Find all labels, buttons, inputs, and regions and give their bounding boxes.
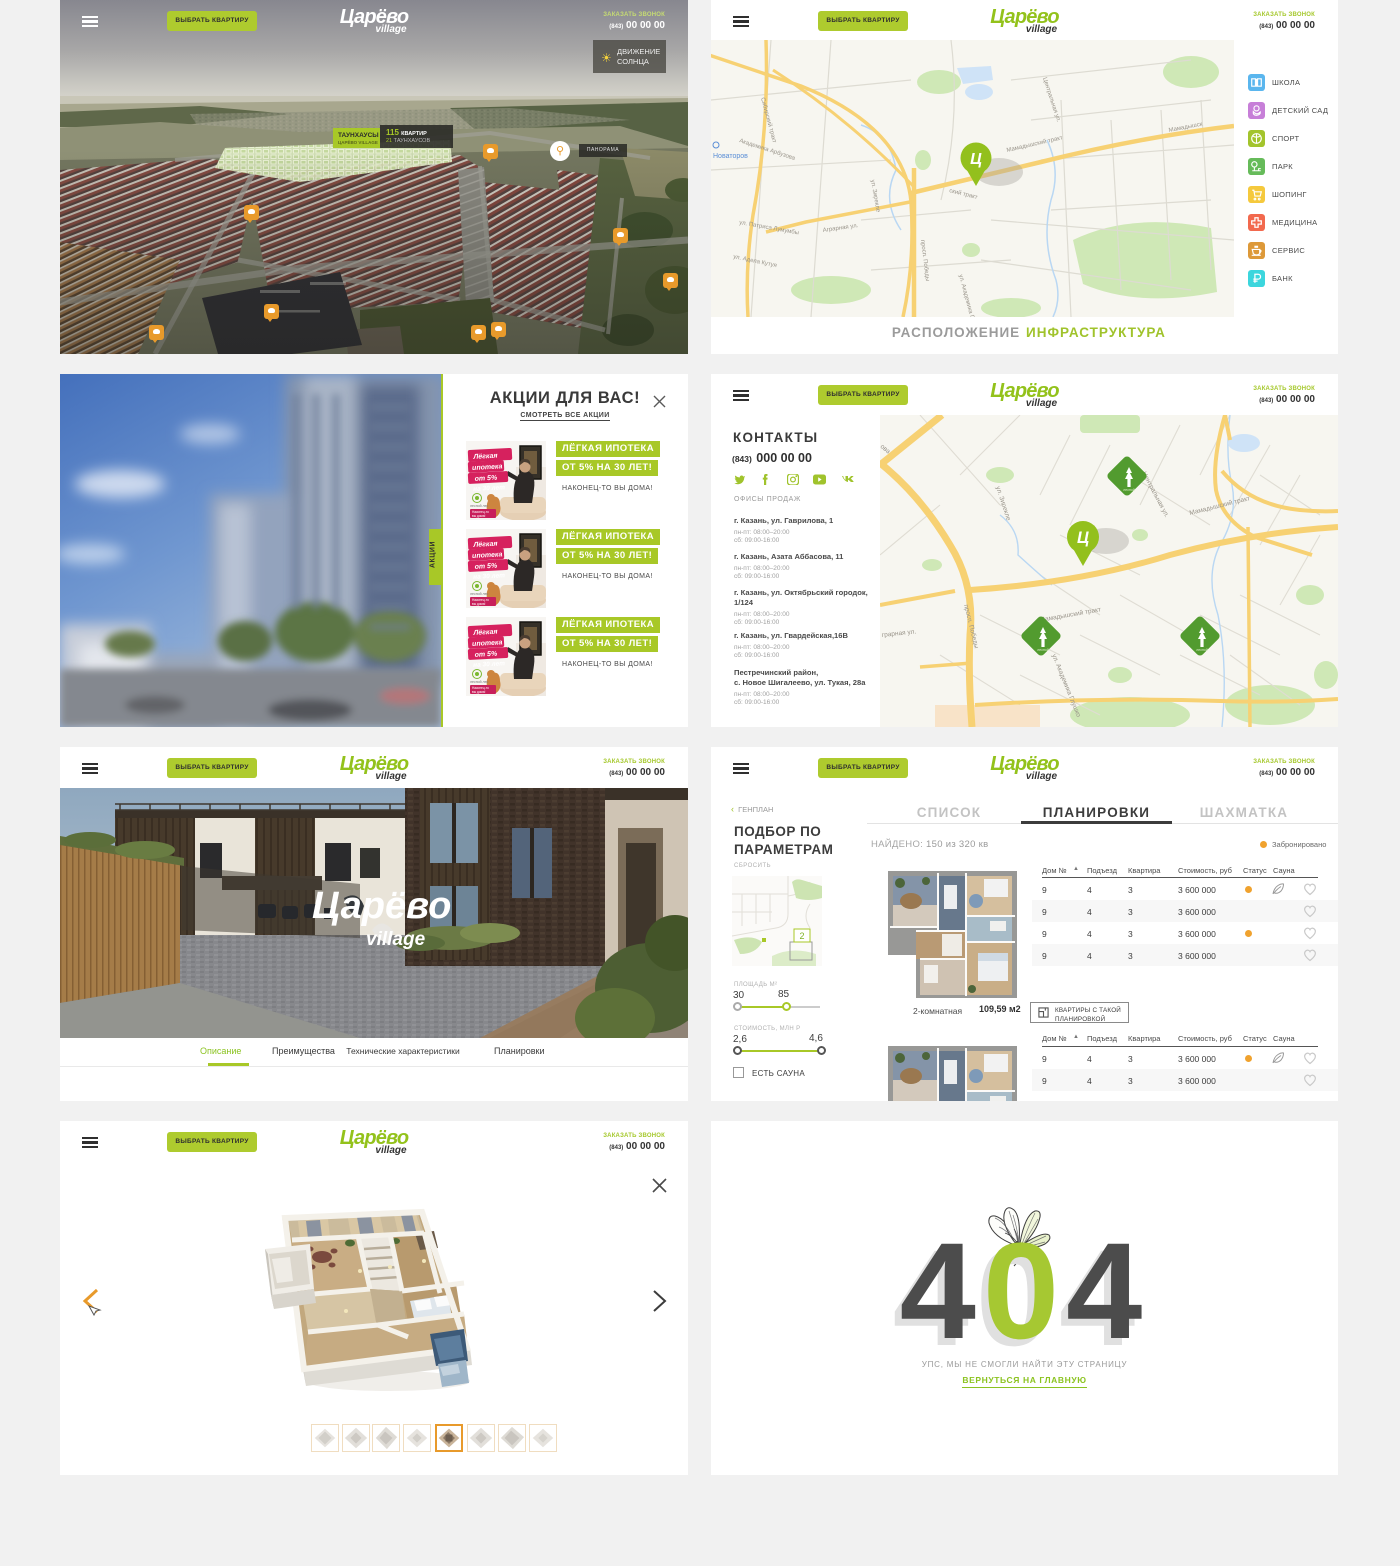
svg-text:village: village xyxy=(366,929,426,950)
svg-text:Царёво: Царёво xyxy=(312,885,451,927)
svg-text:лесной: лесной xyxy=(1037,648,1049,652)
svg-text:Новаторов: Новаторов xyxy=(713,153,748,160)
svg-text:Ц: Ц xyxy=(970,151,982,168)
svg-text:лесной: лесной xyxy=(1123,488,1135,492)
svg-text:Ц: Ц xyxy=(1077,529,1089,547)
svg-text:лесной: лесной xyxy=(1196,648,1208,652)
